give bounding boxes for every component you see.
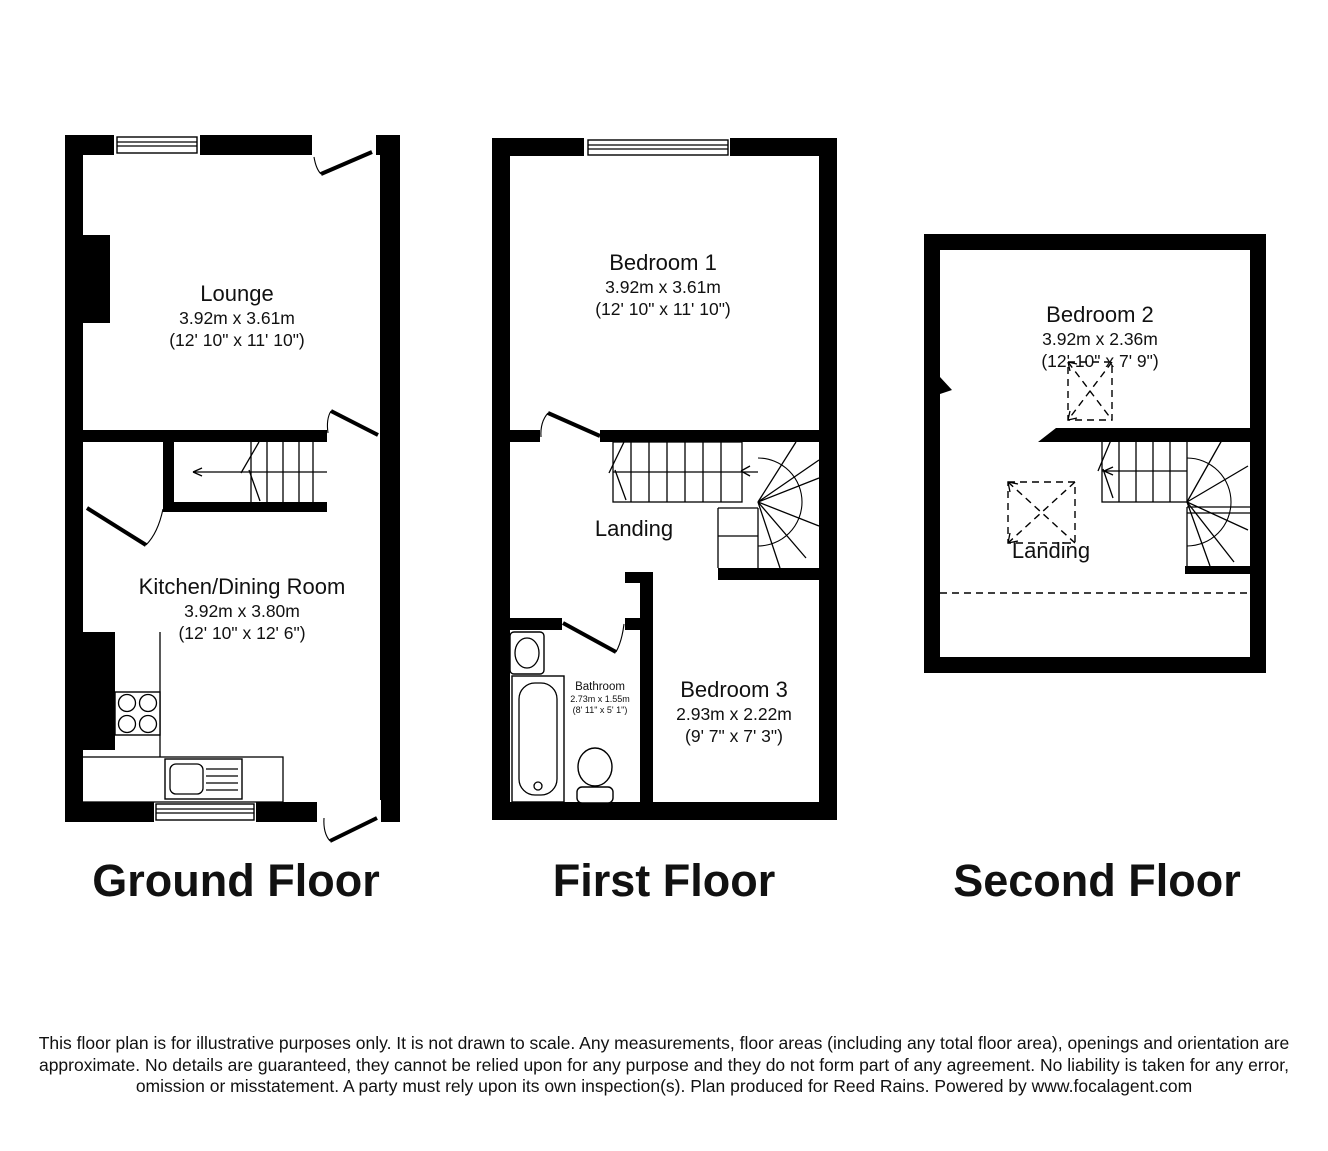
bathroom-label: Bathroom 2.73m x 1.55m (8' 11" x 5' 1") xyxy=(570,681,630,716)
disclaimer-text: This floor plan is for illustrative purp… xyxy=(34,1033,1294,1098)
bathroom-metric: 2.73m x 1.55m xyxy=(570,694,630,705)
lounge-window xyxy=(117,137,197,153)
bedroom3-imperial: (9' 7" x 7' 3") xyxy=(676,725,792,747)
hall-kitchen-door xyxy=(87,508,163,545)
bedroom3-name: Bedroom 3 xyxy=(676,677,792,703)
landing-velux-symbol xyxy=(1008,482,1075,543)
bedroom3-metric: 2.93m x 2.22m xyxy=(676,703,792,725)
second-landing-label: Landing xyxy=(1012,538,1090,564)
ground-stairs xyxy=(193,442,327,502)
first-winder-stairs xyxy=(718,442,819,568)
lounge-metric: 3.92m x 3.61m xyxy=(169,307,305,329)
second-landing-name: Landing xyxy=(1012,538,1090,564)
bedroom2-label: Bedroom 2 3.92m x 2.36m (12' 10" x 7' 9"… xyxy=(1041,302,1158,372)
hob-symbol xyxy=(115,692,160,735)
kitchen-dining-label: Kitchen/Dining Room 3.92m x 3.80m (12' 1… xyxy=(139,574,346,644)
wall-nib xyxy=(940,377,952,394)
kitchen-dining-imperial: (12' 10" x 12' 6") xyxy=(139,622,346,644)
kitchen-dining-name: Kitchen/Dining Room xyxy=(139,574,346,600)
floorplan-canvas: Lounge 3.92m x 3.61m (12' 10" x 11' 10")… xyxy=(0,0,1328,1151)
bathroom-name: Bathroom xyxy=(570,681,630,694)
bathroom-door xyxy=(563,623,624,652)
bedroom1-name: Bedroom 1 xyxy=(595,250,731,276)
first-stairs xyxy=(609,442,819,568)
toilet-symbol xyxy=(577,748,613,803)
bedroom1-metric: 3.92m x 3.61m xyxy=(595,276,731,298)
bedroom3-label: Bedroom 3 2.93m x 2.22m (9' 7" x 7' 3") xyxy=(676,677,792,747)
bathroom-sink-symbol xyxy=(510,632,544,674)
lounge-imperial: (12' 10" x 11' 10") xyxy=(169,329,305,351)
bedroom1-imperial: (12' 10" x 11' 10") xyxy=(595,298,731,320)
second-interior-walls xyxy=(940,377,1266,574)
second-winder-stairs xyxy=(1187,440,1250,566)
second-floor-plan xyxy=(915,228,1275,683)
bedroom1-door xyxy=(541,413,600,437)
bathroom-imperial: (8' 11" x 5' 1") xyxy=(570,705,630,716)
second-stairs xyxy=(1098,440,1250,566)
lounge-name: Lounge xyxy=(169,281,305,307)
lounge-hall-door xyxy=(327,411,378,435)
bedroom2-metric: 3.92m x 2.36m xyxy=(1041,328,1158,350)
second-floor-title: Second Floor xyxy=(953,857,1241,905)
bathtub-symbol xyxy=(512,676,564,802)
lounge-label: Lounge 3.92m x 3.61m (12' 10" x 11' 10") xyxy=(169,281,305,351)
ground-floor-plan xyxy=(60,130,405,845)
first-landing-label: Landing xyxy=(595,516,673,542)
sink-symbol xyxy=(165,759,242,799)
bedroom1-window xyxy=(588,140,728,155)
first-floor-title: First Floor xyxy=(553,857,776,905)
first-landing-name: Landing xyxy=(595,516,673,542)
kitchen-window xyxy=(156,804,254,820)
kitchen-dining-metric: 3.92m x 3.80m xyxy=(139,600,346,622)
kitchen-unit-block xyxy=(65,632,115,750)
ground-floor-title: Ground Floor xyxy=(92,857,379,905)
bedroom2-imperial: (12' 10" x 7' 9") xyxy=(1041,350,1158,372)
lounge-chimney-breast xyxy=(65,235,110,323)
bedroom1-label: Bedroom 1 3.92m x 3.61m (12' 10" x 11' 1… xyxy=(595,250,731,320)
bedroom2-name: Bedroom 2 xyxy=(1041,302,1158,328)
